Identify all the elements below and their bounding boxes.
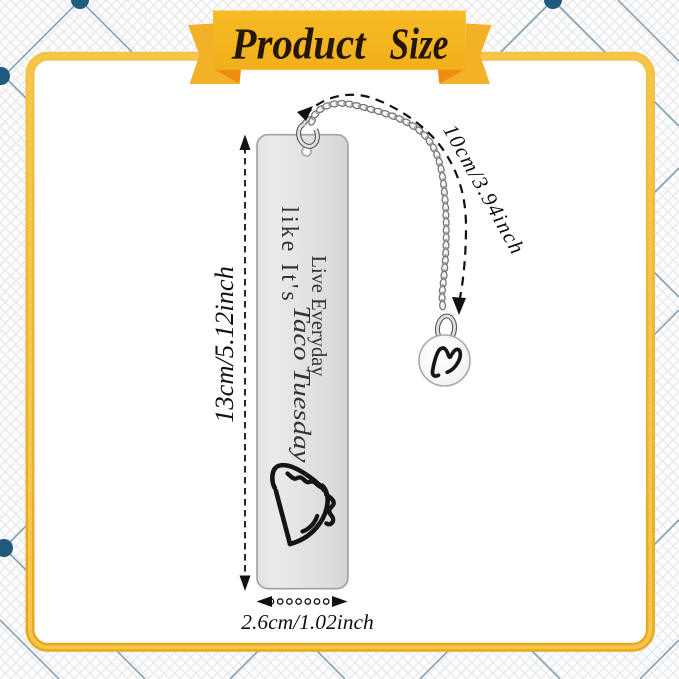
svg-text:Product: Product	[231, 20, 368, 69]
svg-text:13cm/5.12inch: 13cm/5.12inch	[209, 266, 239, 423]
svg-text:Taco Tuesday: Taco Tuesday	[288, 306, 315, 463]
svg-text:like It's: like It's	[276, 206, 302, 303]
svg-text:Size: Size	[390, 20, 449, 69]
svg-text:2.6cm/1.02inch: 2.6cm/1.02inch	[241, 610, 374, 634]
